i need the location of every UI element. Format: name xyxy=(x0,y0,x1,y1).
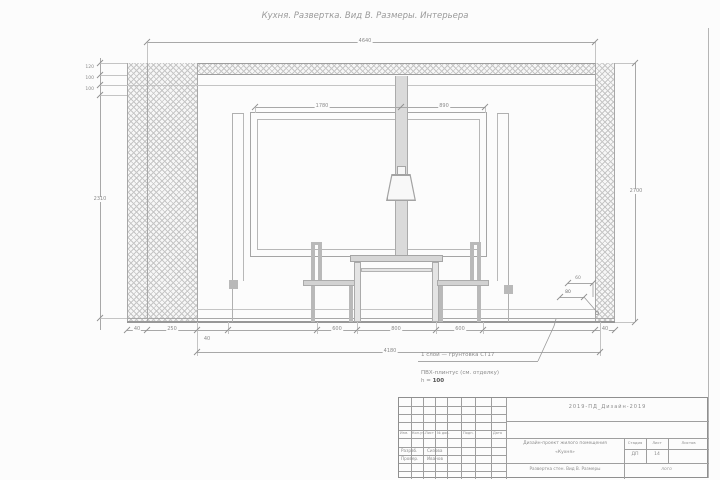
ceiling-slab-hatch xyxy=(127,63,615,75)
left-wall-inner-line xyxy=(197,63,198,322)
note-line3-label: h = xyxy=(421,378,431,384)
tb-hline xyxy=(399,406,506,407)
tb-role-1-label: Разраб. xyxy=(401,449,417,454)
dim-panel-ext-r xyxy=(485,107,486,113)
tb-hline xyxy=(399,471,506,472)
tb-doc-code: 2019-ПД_Дизайн-2019 xyxy=(506,405,709,411)
tb-project-line1: Дизайн-проект жилого помещения xyxy=(506,442,624,447)
tb-rev-header-list: Лист xyxy=(425,432,434,436)
tb-sheet-caption: Развертка стен. Вид В. Размеры xyxy=(506,467,624,472)
tb-sheet-value: 14 xyxy=(646,453,668,458)
right-pilaster-cap xyxy=(497,113,509,114)
dim-panel-line xyxy=(255,107,485,108)
dim-chain-line xyxy=(127,330,615,331)
tb-rev-header-izm: Изм. xyxy=(400,432,408,436)
dim-label-chain-7: 40 xyxy=(601,327,609,332)
dim-left-ext5 xyxy=(100,318,127,319)
dim-right-ext-bot xyxy=(615,322,635,323)
dim-right-ext-top xyxy=(615,63,635,64)
chair-left-back-cap xyxy=(311,242,322,245)
dim-label-chain-5: 800 xyxy=(390,327,402,332)
dim-panel-ext-l xyxy=(255,107,256,113)
table-stretcher xyxy=(361,268,432,272)
dim-label-detail-w: 60 xyxy=(574,277,582,282)
dim-label-left-2: 100 xyxy=(66,77,94,82)
wall-panel-inner xyxy=(257,119,480,250)
note-line3-value: 100 xyxy=(433,378,444,384)
left-pilaster-inner xyxy=(243,113,244,281)
dim-label-overall: 4180 xyxy=(383,349,398,354)
right-wall-inner-line xyxy=(595,63,596,322)
dim-chain-ext1 xyxy=(228,322,229,334)
chair-left-back-post2 xyxy=(318,242,322,282)
page-title: Кухня. Развертка. Вид В. Размеры. Интерь… xyxy=(160,12,570,22)
tb-rev-header-podp: Подп. xyxy=(463,432,474,436)
dim-chain-ext4 xyxy=(436,322,437,334)
title-block: 2019-ПД_Дизайн-2019 Изм. Кол.уч. Лист № … xyxy=(398,397,708,478)
dim-label-panel-left: 1780 xyxy=(315,104,330,109)
left-wall-hatch xyxy=(127,63,197,322)
right-pilaster-inner xyxy=(497,113,498,281)
dim-left-ext2 xyxy=(100,75,127,76)
dim-label-panel-right: 890 xyxy=(438,104,450,109)
left-pilaster-bracket xyxy=(229,280,238,289)
dim-top-ext-left xyxy=(147,42,148,63)
note-leader-text: 1 слой — грунтовка СТ17 xyxy=(421,352,494,358)
dim-label-chain-4: 600 xyxy=(331,327,343,332)
left-pilaster-cap xyxy=(232,113,244,114)
tb-hline xyxy=(399,422,506,423)
dim-label-left-3: 100 xyxy=(66,88,94,93)
tb-hline xyxy=(399,414,506,415)
dim-left-ext1 xyxy=(100,63,127,64)
tb-role-2-label: Провер. xyxy=(401,457,418,462)
chair-right-seat xyxy=(437,280,489,286)
tb-hline-mid xyxy=(399,438,709,439)
chair-right-back-post2 xyxy=(470,242,474,282)
left-wall-mid-line xyxy=(147,63,148,322)
dim-left-ext3 xyxy=(100,85,197,86)
table-top xyxy=(350,255,443,262)
tb-sheet-header: Лист xyxy=(646,441,668,445)
right-wall-hatch xyxy=(595,63,615,322)
left-wall-outer-line xyxy=(127,63,128,322)
table-leg-right xyxy=(432,262,439,322)
note-leader-underline xyxy=(418,361,538,362)
dim-chain-ext5 xyxy=(483,322,484,334)
dim-label-left-1: 120 xyxy=(66,66,94,71)
dim-left-line xyxy=(100,58,101,330)
sheet-frame-right xyxy=(708,28,709,478)
table-leg-left xyxy=(354,262,361,322)
dim-overall-line xyxy=(197,352,601,353)
tb-hline xyxy=(399,463,506,464)
right-wall-outer-line xyxy=(614,63,615,322)
left-pilaster-outer xyxy=(232,113,233,322)
tb-role-1-name: Сизова xyxy=(427,449,442,454)
tb-hline-stagevals xyxy=(624,449,709,450)
note-line2: ПВХ-плинтус (см. отделку) xyxy=(421,370,499,376)
dim-top-ext-right xyxy=(595,42,596,63)
dim-label-chain-6: 600 xyxy=(454,327,466,332)
chair-left-front-leg xyxy=(349,286,353,322)
dim-detail-h-line xyxy=(560,297,584,298)
tb-rev-header-data: Дата xyxy=(493,432,502,436)
tb-project-line2: «Кухня» xyxy=(506,451,624,456)
right-pilaster-bracket xyxy=(504,285,513,294)
tb-hline-caption xyxy=(506,463,709,464)
dim-chain-ext3 xyxy=(357,322,358,334)
chair-left-seat xyxy=(303,280,355,286)
dim-label-detail-h: 80 xyxy=(564,291,572,296)
dim-label-right-height: 2700 xyxy=(629,189,644,194)
dim-label-chain-3: 40 xyxy=(203,337,211,342)
floor-line xyxy=(127,318,615,319)
skirting-line xyxy=(197,309,595,310)
tb-rev-header-dok: № док. xyxy=(437,432,450,436)
dim-detail-w-line xyxy=(568,283,593,284)
dim-label-chain-2: 250 xyxy=(166,327,178,332)
tb-logo: лого xyxy=(624,468,709,473)
dim-label-chain-1: 40 xyxy=(133,327,141,332)
tb-hline-code xyxy=(506,421,709,422)
drawing-sheet: Кухня. Развертка. Вид В. Размеры. Интерь… xyxy=(0,0,720,480)
dim-label-top-width: 4640 xyxy=(358,39,373,44)
chair-right-front-leg xyxy=(439,286,443,322)
dim-overall-ext-r xyxy=(600,322,601,356)
tb-sheets-header: Листов xyxy=(668,441,709,445)
chair-right-back-cap xyxy=(470,242,481,245)
dim-label-left-height: 2310 xyxy=(93,197,108,202)
tb-stage-header: Стадия xyxy=(624,441,646,445)
dim-left-ext4 xyxy=(100,95,127,96)
note-line3: h = 100 xyxy=(421,378,444,384)
dim-chain-ext2 xyxy=(317,322,318,334)
dim-overall-ext-l xyxy=(197,322,198,356)
tb-role-2-name: Иванов xyxy=(427,457,443,462)
floor-slab-line xyxy=(127,321,615,323)
tb-stage-value: ДП xyxy=(624,453,646,458)
tb-rev-header-koluch: Кол.уч. xyxy=(412,432,425,436)
